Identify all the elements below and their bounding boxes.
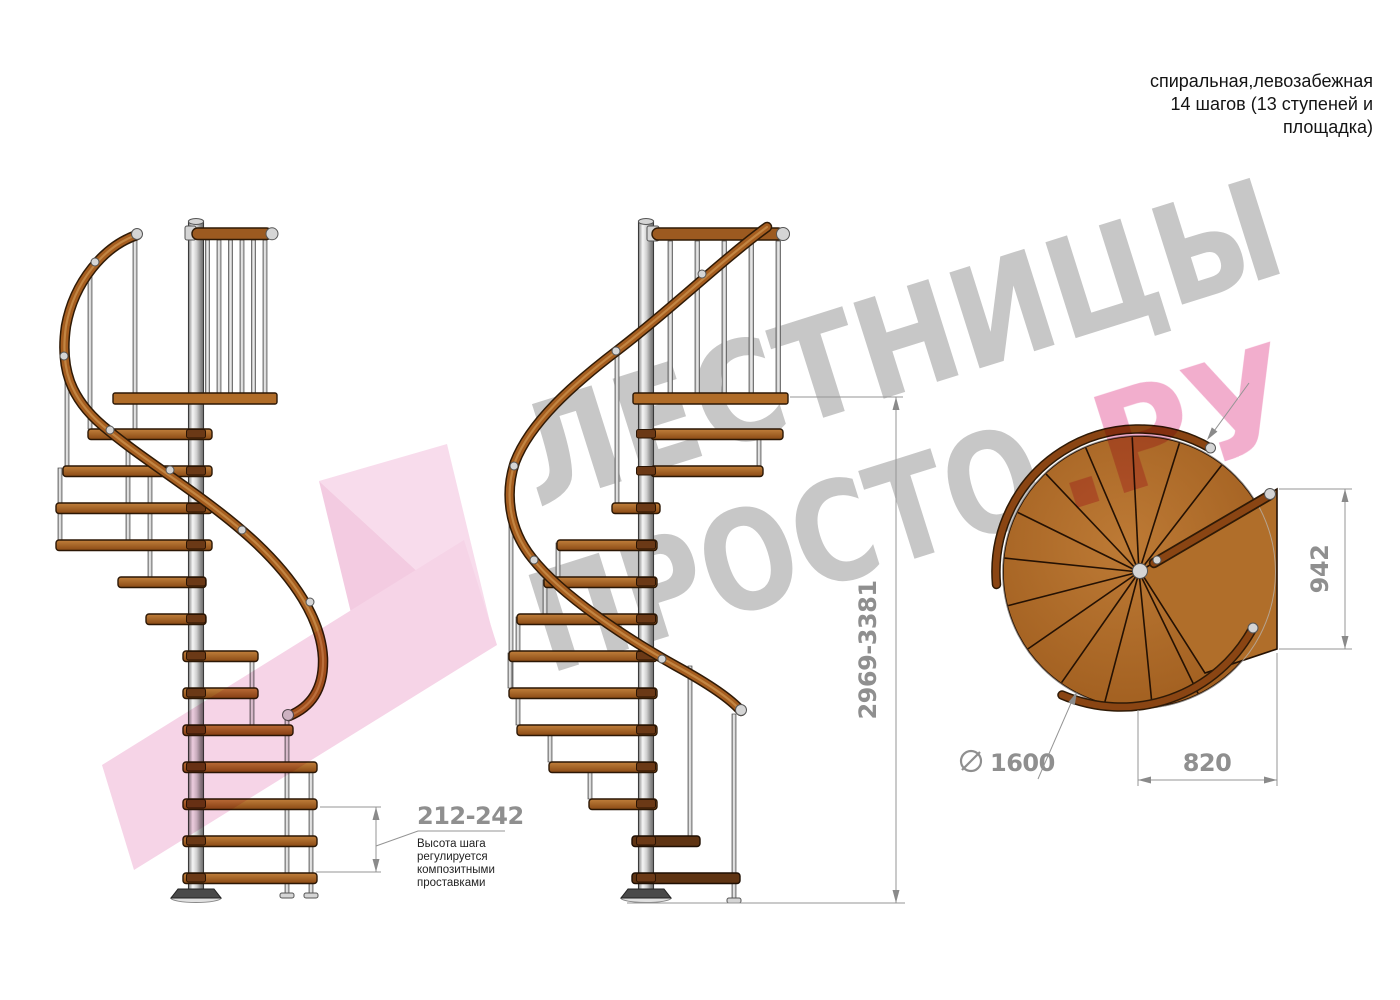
platform-handrail [192, 228, 272, 240]
center-hub [1133, 564, 1148, 579]
step-height-value: 212-242 [417, 802, 524, 830]
step-height-note-4: проставками [417, 877, 485, 889]
title-line-1: спиральная,левозабежная [1150, 71, 1373, 91]
platform-depth-value: 942 [1306, 545, 1334, 594]
step-height-note-2: регулируется [417, 851, 488, 863]
dimension-diameter: 1600 [961, 692, 1077, 779]
rail-end-cap [736, 705, 747, 716]
title-block: спиральная,левозабежная 14 шагов (13 сту… [1150, 71, 1373, 137]
platform-deck [113, 393, 277, 404]
rail-start-cap [132, 229, 143, 240]
title-line-3: площадка) [1283, 117, 1373, 137]
platform-width-value: 820 [1183, 749, 1232, 777]
step-height-note-3: композитными [417, 864, 495, 876]
total-height-value: 2969-3381 [854, 580, 882, 719]
dimension-step-height: 212-242 Высота шага регулируется компози… [316, 802, 524, 889]
pole-base-flange [621, 889, 671, 898]
platform-deck [633, 393, 788, 404]
step-height-note-1: Высота шага [417, 838, 486, 850]
pole-base-flange [171, 889, 221, 898]
handrail-end-cap [777, 228, 790, 241]
handrail-end-cap [266, 228, 278, 240]
staircase-technical-drawing: ЛЕСТНИЦЫ ПРОСТО [0, 0, 1400, 1000]
dimension-platform-depth: 942 [1279, 489, 1352, 649]
pole-top-cap [189, 219, 204, 225]
title-line-2: 14 шагов (13 ступеней и [1171, 94, 1374, 114]
drawing-page: ЛЕСТНИЦЫ ПРОСТО [0, 0, 1400, 1000]
